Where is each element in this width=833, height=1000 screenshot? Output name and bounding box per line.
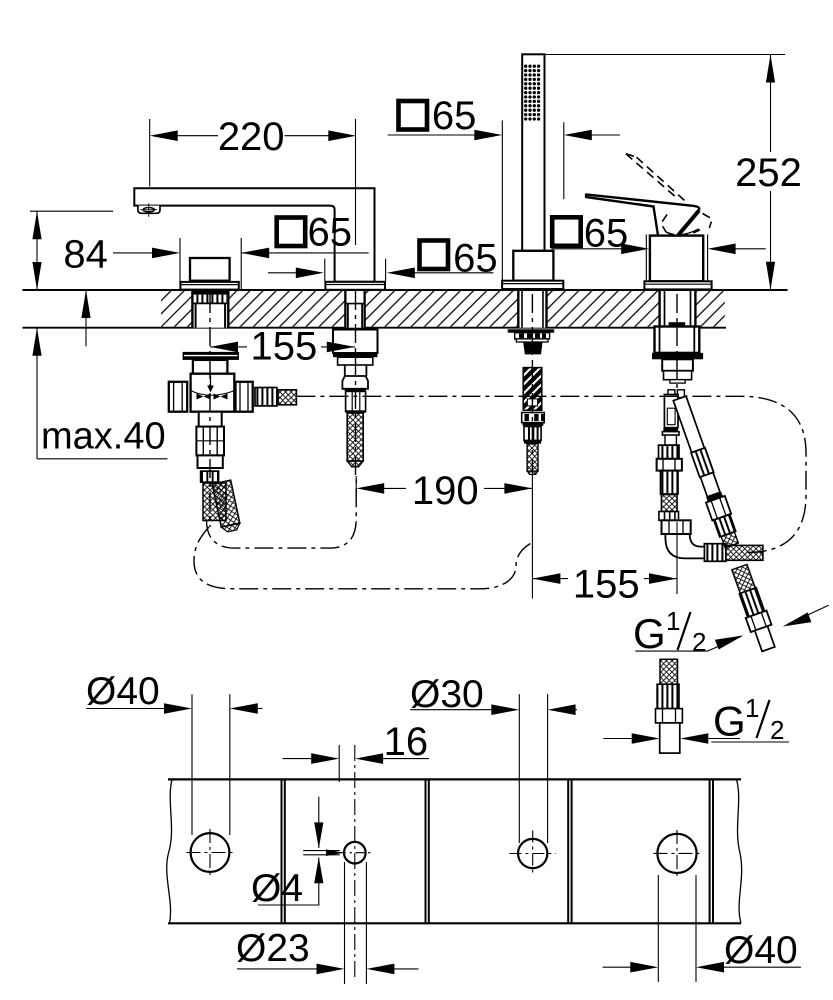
svg-text:84: 84 bbox=[63, 232, 108, 276]
svg-text:65: 65 bbox=[308, 210, 353, 254]
svg-text:G: G bbox=[713, 698, 746, 745]
svg-text:G: G bbox=[633, 610, 666, 657]
svg-text:65: 65 bbox=[584, 212, 629, 256]
svg-text:Ø40: Ø40 bbox=[86, 670, 160, 713]
svg-text:max.40: max.40 bbox=[41, 415, 166, 457]
svg-text:155: 155 bbox=[251, 325, 318, 369]
svg-text:155: 155 bbox=[573, 562, 640, 606]
svg-text:190: 190 bbox=[412, 469, 479, 513]
svg-text:Ø40: Ø40 bbox=[724, 929, 798, 972]
svg-text:1: 1 bbox=[745, 693, 759, 723]
svg-text:2: 2 bbox=[770, 715, 784, 745]
svg-text:16: 16 bbox=[384, 720, 429, 764]
svg-text:2: 2 bbox=[692, 627, 706, 657]
svg-text:252: 252 bbox=[735, 151, 802, 195]
svg-text:65: 65 bbox=[432, 94, 477, 138]
svg-text:65: 65 bbox=[453, 237, 498, 281]
svg-text:1: 1 bbox=[666, 606, 680, 636]
svg-text:220: 220 bbox=[218, 115, 285, 159]
svg-text:Ø23: Ø23 bbox=[236, 927, 310, 970]
svg-text:Ø4: Ø4 bbox=[251, 867, 303, 910]
